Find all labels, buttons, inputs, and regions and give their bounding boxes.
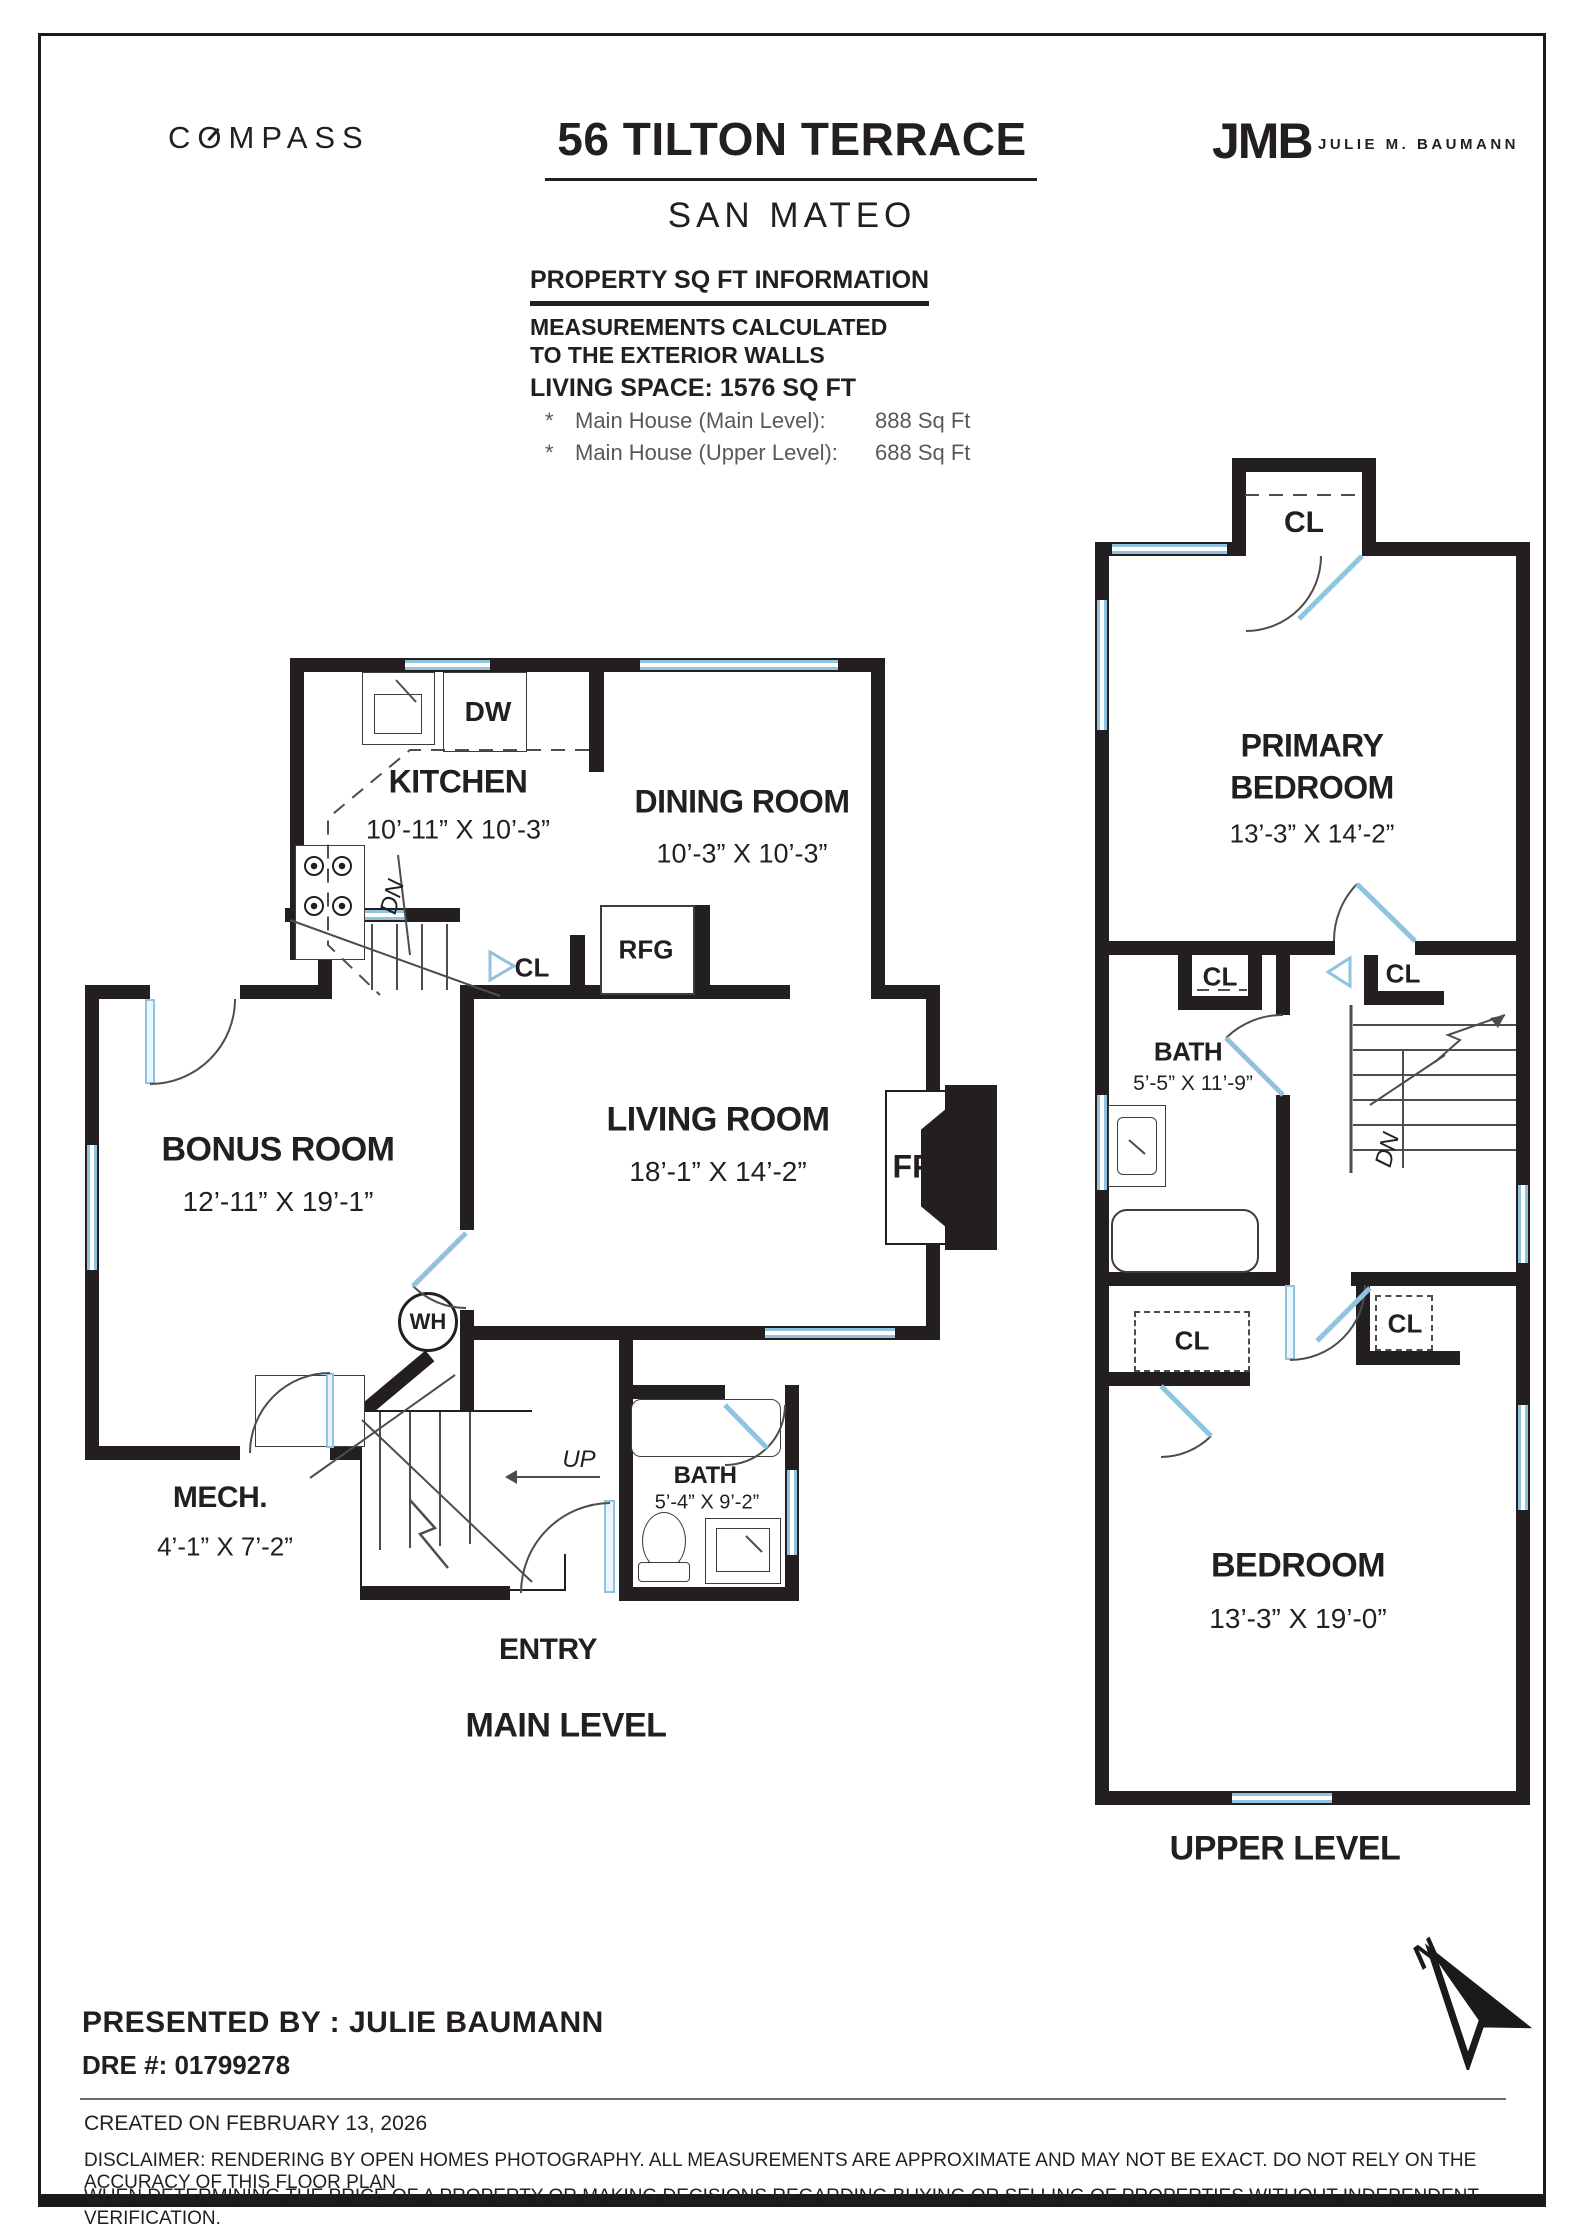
- closet-label: CL: [1203, 962, 1238, 993]
- sqft-label: Main House (Upper Level):: [575, 440, 875, 466]
- page-border-left: [38, 33, 41, 2206]
- closet-label: CL: [515, 953, 550, 984]
- room-name-kitchen: KITCHEN: [389, 764, 528, 801]
- closet-label: CL: [1386, 959, 1421, 990]
- bullet: *: [545, 408, 575, 434]
- main-level-label: MAIN LEVEL: [466, 1707, 667, 1746]
- room-dims-dining: 10’-3” X 10’-3”: [656, 839, 827, 870]
- closet-label: CL: [1284, 506, 1324, 540]
- north-arrow-icon: N: [1398, 1920, 1538, 2070]
- agent-logo: JMB: [1212, 112, 1312, 170]
- sqft-value: 688 Sq Ft: [875, 440, 970, 466]
- disclaimer-line2: WHEN DETERMINING THE PRICE OF A PROPERTY…: [84, 2186, 1584, 2230]
- measurement-note-line1: MEASUREMENTS CALCULATED: [530, 314, 887, 341]
- room-name-bedroom: BEDROOM: [1211, 1547, 1385, 1586]
- measurement-note-line2: TO THE EXTERIOR WALLS: [530, 342, 825, 369]
- sqft-value: 888 Sq Ft: [875, 408, 970, 434]
- upper-level-label: UPPER LEVEL: [1170, 1830, 1401, 1869]
- room-dims-primary: 13’-3” X 14’-2”: [1230, 819, 1395, 850]
- room-dims-bath: 5’-4” X 9’-2”: [655, 1492, 759, 1515]
- room-name-bonus: BONUS ROOM: [162, 1131, 395, 1170]
- dishwasher-label: DW: [465, 696, 512, 728]
- floorplan-flyer-page: COMPASS 56 TILTON TERRACE SAN MATEO JMB …: [0, 0, 1584, 2240]
- presented-by: PRESENTED BY : JULIE BAUMANN: [82, 2006, 604, 2040]
- closet-label: CL: [1175, 1326, 1210, 1357]
- room-dims-living: 18’-1” X 14’-2”: [629, 1156, 806, 1188]
- refrigerator-label: RFG: [619, 935, 674, 966]
- footer-divider: [80, 2098, 1506, 2100]
- created-date: CREATED ON FEBRUARY 13, 2026: [84, 2112, 427, 2136]
- main-level-floorplan: KITCHEN 10’-11” X 10’-3” DINING ROOM 10’…: [80, 650, 1080, 1770]
- room-dims-mech: 4’-1” X 7’-2”: [157, 1532, 293, 1563]
- agent-logo-name: JULIE M. BAUMANN: [1318, 136, 1519, 153]
- sqft-label: Main House (Main Level):: [575, 408, 875, 434]
- upper-level-floorplan: CL PRIMARY BEDROOM 13’-3” X 14’-2” CL CL…: [1085, 450, 1555, 1900]
- stairs-up-label: UP: [562, 1446, 595, 1474]
- room-dims-bedroom: 13’-3” X 19’-0”: [1209, 1603, 1386, 1635]
- fireplace-label: FP: [893, 1149, 934, 1186]
- bullet: *: [545, 440, 575, 466]
- closet-label: CL: [1388, 1309, 1423, 1340]
- sqft-row-upper-level: * Main House (Upper Level): 688 Sq Ft: [545, 440, 970, 466]
- room-name-primary-line2: BEDROOM: [1230, 770, 1394, 807]
- room-dims-upper-bath: 5’-5” X 11’-9”: [1133, 1072, 1253, 1096]
- page-subtitle: SAN MATEO: [668, 196, 917, 236]
- room-name-primary-line1: PRIMARY: [1241, 728, 1384, 765]
- room-name-upper-bath: BATH: [1154, 1037, 1222, 1068]
- living-space-total: LIVING SPACE: 1576 SQ FT: [530, 374, 856, 403]
- room-name-dining: DINING ROOM: [635, 784, 850, 821]
- room-dims-kitchen: 10’-11” X 10’-3”: [366, 815, 550, 846]
- water-heater-label: WH: [410, 1309, 447, 1335]
- room-name-bath: BATH: [674, 1462, 737, 1490]
- property-info-heading: PROPERTY SQ FT INFORMATION: [530, 266, 929, 306]
- page-title: 56 TILTON TERRACE: [557, 112, 1026, 166]
- title-underline: [545, 178, 1037, 181]
- sqft-row-main-level: * Main House (Main Level): 888 Sq Ft: [545, 408, 970, 434]
- page-border-top: [38, 33, 1546, 36]
- dre-number: DRE #: 01799278: [82, 2050, 290, 2081]
- compass-logo: COMPASS: [168, 120, 370, 156]
- room-name-mech: MECH.: [173, 1481, 267, 1515]
- upper-plan-linework: [1085, 450, 1555, 1900]
- room-name-living: LIVING ROOM: [606, 1101, 829, 1140]
- entry-label: ENTRY: [499, 1633, 597, 1667]
- room-dims-bonus: 12’-11” X 19’-1”: [183, 1186, 374, 1218]
